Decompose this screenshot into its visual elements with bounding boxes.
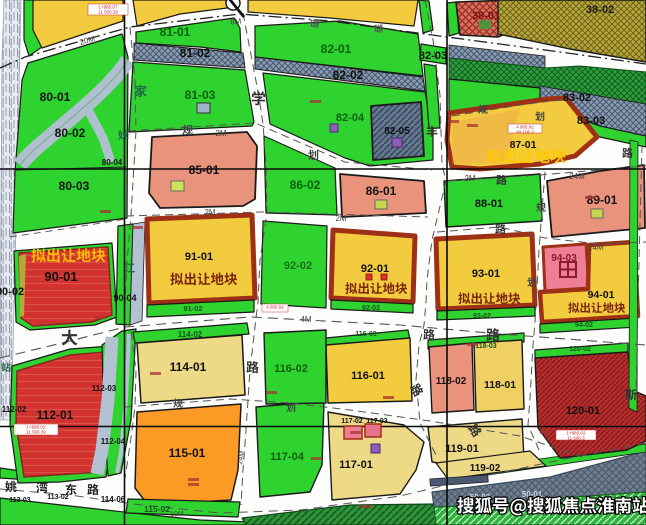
svg-text:8M: 8M [230,17,242,27]
svg-text:11 506.39: 11 506.39 [98,10,118,15]
svg-text:83-03: 83-03 [577,115,605,127]
svg-text:91-01: 91-01 [185,251,213,263]
svg-text:90-04: 90-04 [113,293,136,303]
svg-text:120-01: 120-01 [566,405,600,417]
svg-text:4 905.92: 4 905.92 [266,305,284,310]
svg-text:114-01: 114-01 [170,360,207,374]
svg-text:118-02: 118-02 [436,376,467,387]
svg-text:24M: 24M [588,243,604,253]
svg-text:80-04: 80-04 [102,158,123,167]
svg-text:118-03: 118-03 [475,343,497,350]
svg-text:88-01: 88-01 [475,198,503,210]
svg-text:112-04: 112-04 [101,437,126,446]
svg-text:82-04: 82-04 [336,112,365,124]
svg-text:90-01: 90-01 [44,269,77,284]
svg-text:38-01: 38-01 [472,10,500,22]
svg-text:112-03: 112-03 [92,384,117,393]
svg-text:81-02: 81-02 [180,46,211,60]
svg-text:80-01: 80-01 [40,90,71,104]
svg-text:40 106.3: 40 106.3 [516,130,534,135]
svg-text:10M: 10M [170,511,184,519]
svg-text:116-02: 116-02 [274,363,308,375]
svg-text:2M: 2M [215,129,226,138]
svg-text:4M: 4M [300,315,311,324]
svg-text:92-03: 92-03 [362,305,380,312]
svg-text:112-02: 112-02 [2,405,27,414]
svg-text:117-01: 117-01 [339,459,373,471]
svg-text:2M: 2M [464,174,475,183]
svg-text:119-01: 119-01 [445,443,479,455]
svg-text:89-01: 89-01 [587,193,618,207]
svg-text:117-03: 117-03 [366,418,388,425]
svg-text:94-03: 94-03 [551,253,577,264]
svg-text:113-03: 113-03 [9,497,31,504]
svg-text:82-03: 82-03 [419,50,447,62]
svg-text:118-01: 118-01 [484,379,516,391]
svg-text:91-02: 91-02 [183,304,202,313]
svg-text:112-01: 112-01 [37,408,74,422]
svg-text:92-01: 92-01 [361,263,389,275]
svg-text:93-01: 93-01 [472,268,500,280]
svg-text:87-01: 87-01 [510,139,537,151]
svg-text:38-02: 38-02 [586,4,614,16]
svg-text:116-03: 116-03 [355,331,377,338]
svg-text:115-01: 115-01 [169,446,206,460]
svg-text:117-02: 117-02 [341,418,363,425]
svg-text:82-01: 82-01 [321,42,352,56]
svg-text:93-02: 93-02 [473,313,491,320]
svg-text:94-01: 94-01 [588,289,615,301]
svg-text:86-02: 86-02 [290,178,321,192]
svg-text:114-02: 114-02 [178,330,203,339]
svg-text:11 506.3: 11 506.3 [567,436,585,441]
svg-text:80-02: 80-02 [55,126,86,140]
svg-text:119-02: 119-02 [470,463,501,474]
svg-text:2M: 2M [335,214,346,223]
svg-text:82-02: 82-02 [333,68,364,82]
svg-text:117-04: 117-04 [270,451,305,463]
svg-text:81-01: 81-01 [160,25,191,39]
svg-text:83-02: 83-02 [563,92,591,104]
svg-text:82-05: 82-05 [384,126,410,137]
svg-text:85-01: 85-01 [189,163,220,177]
svg-text:94-02: 94-02 [575,322,593,329]
svg-text:24M: 24M [569,172,585,181]
svg-text:86-01: 86-01 [366,184,397,198]
svg-text:113-02: 113-02 [47,494,69,501]
svg-text:115-02: 115-02 [144,504,170,514]
svg-text:114-06: 114-06 [101,495,126,504]
svg-text:92-02: 92-02 [284,260,312,272]
svg-text:81-03: 81-03 [185,88,216,102]
svg-text:120-02: 120-02 [569,346,591,353]
svg-text:116-01: 116-01 [351,370,385,382]
svg-text:90-02: 90-02 [0,286,24,298]
svg-text:80-03: 80-03 [59,179,90,193]
svg-text:2M: 2M [204,208,215,217]
svg-text:11 506.39: 11 506.39 [26,430,46,435]
